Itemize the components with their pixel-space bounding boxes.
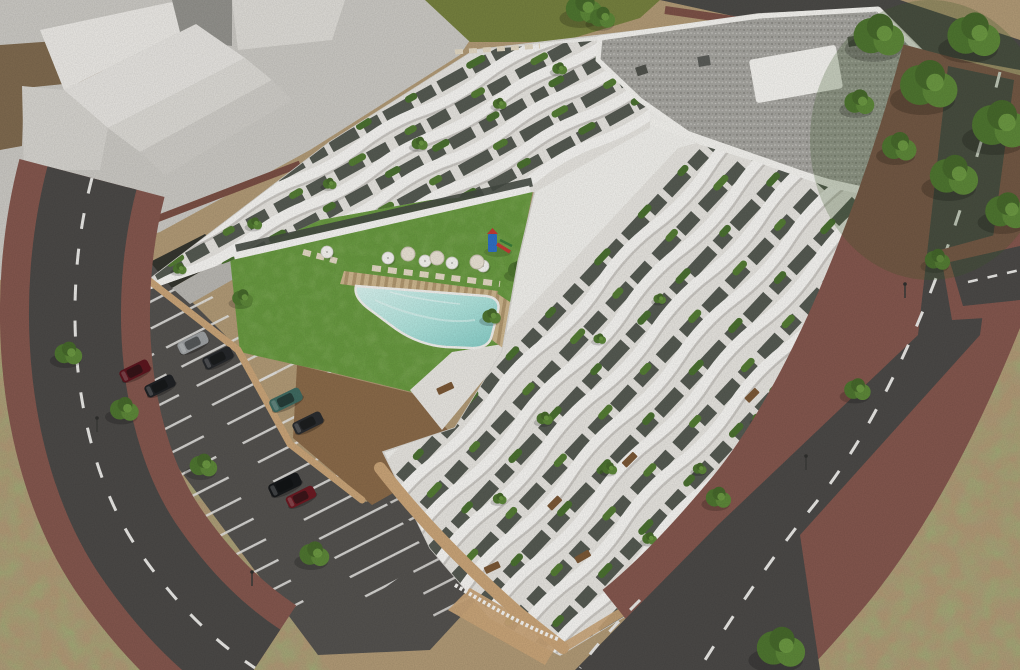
aerial-render-viewport	[0, 0, 1020, 670]
photo-grain-overlay	[0, 0, 1020, 670]
aerial-architectural-render	[0, 0, 1020, 670]
